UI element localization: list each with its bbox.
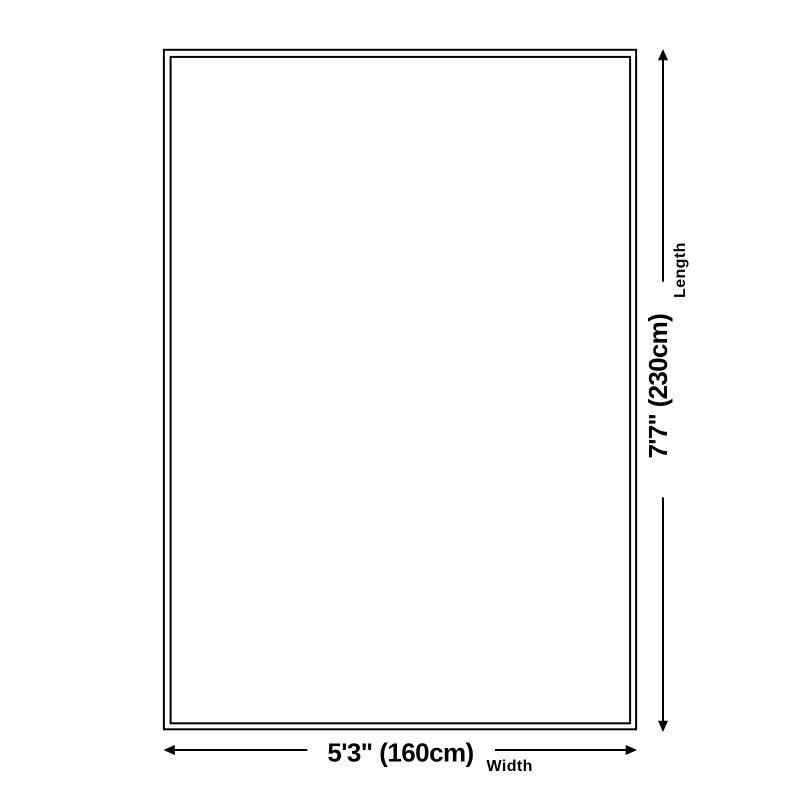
svg-text:5'3" (160cm): 5'3" (160cm) — [327, 738, 473, 768]
svg-text:7'7" (230cm): 7'7" (230cm) — [643, 314, 673, 459]
svg-text:Width: Width — [487, 758, 533, 775]
svg-text:Length: Length — [672, 242, 689, 298]
